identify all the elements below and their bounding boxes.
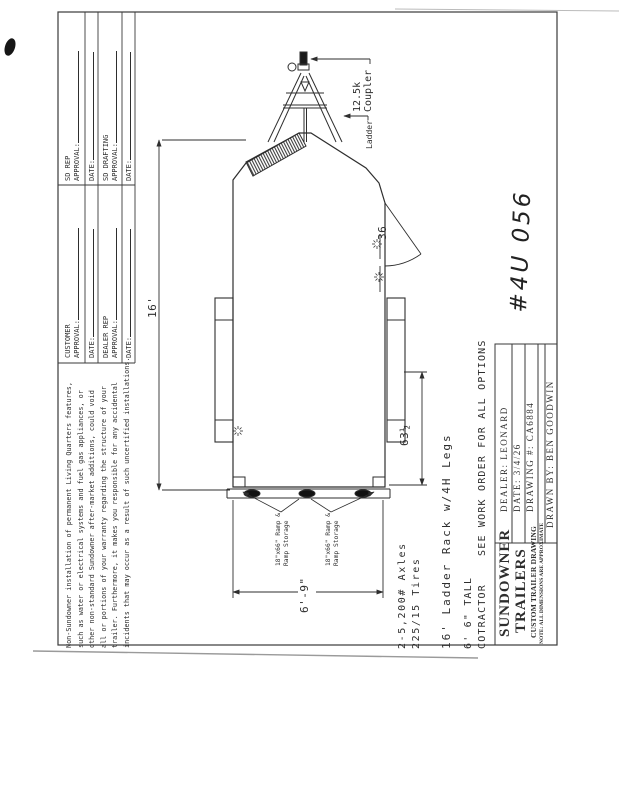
sd-rep-label: SD REP (64, 51, 73, 181)
sd-drafting-label: SD DRAFTING (102, 51, 111, 181)
warranty-disclaimer: Non-Sundowner installation of permanent … (64, 357, 134, 648)
rear-dim-label: 63½ (399, 425, 411, 446)
disclaimer-line: such as water or electrical systems and … (76, 357, 88, 648)
signature-line (114, 228, 117, 320)
trailer-body (233, 133, 385, 487)
dimensions-note: NOTE: ALL DIMENSIONS ARE APPROXIMATE (540, 523, 546, 644)
fenders (215, 298, 405, 442)
disclaimer-line: all or portions of your warranty regardi… (99, 357, 111, 648)
approval-label: APPROVAL: (73, 320, 81, 358)
drawn-by-field: DRAWN BY: BEN GOODWIN (546, 380, 555, 528)
date-cell: DATE: (125, 52, 134, 181)
date-line (91, 229, 94, 337)
work-order-note: SEE WORK ORDER FOR ALL OPTIONS (478, 339, 489, 556)
approval-label: APPROVAL: (73, 143, 81, 181)
sd-rep-approval-cell: SD REP APPROVAL: (64, 51, 82, 181)
customer-approval-cell: CUSTOMER APPROVAL: (64, 228, 82, 358)
light-burst-icon (233, 426, 243, 436)
option-contractor: COTRACTOR (478, 584, 489, 649)
date-label: DATE: (125, 337, 133, 358)
signature-line (76, 228, 79, 320)
tail-light-icon (299, 490, 315, 497)
date-label: DATE: (88, 160, 96, 181)
ladder-rack-bar (246, 133, 306, 176)
ladder-label: Ladder (366, 120, 374, 149)
option-axles: 2-5,200# Axles (396, 542, 410, 649)
option-height: 6' 6" TALL (464, 577, 475, 649)
option-tires: 225/15 Tires (410, 542, 424, 649)
scanned-trailer-drawing-page: SD REP APPROVAL: DATE: SD DRAFTING APPRO… (0, 0, 619, 800)
length-dim-label: 16' (147, 297, 159, 318)
customer-label: CUSTOMER (64, 228, 73, 358)
ramp-label-right: 18"x66" Ramp & Ramp Storage (325, 513, 341, 566)
option-ladder-rack: 16' Ladder Rack w/4H Legs (441, 433, 453, 649)
coupler-icon (300, 52, 307, 65)
date-cell: DATE: (88, 52, 97, 181)
tongue-and-coupler (268, 52, 342, 142)
ramp-label-left: 18"x66" Ramp & Ramp Storage (275, 513, 291, 566)
disclaimer-line: trailer. Furthermore, it makes you respo… (110, 357, 122, 648)
company-name-line2: TRAILERS (514, 548, 530, 633)
rear-bumper (227, 489, 390, 512)
date-label: DATE: (125, 160, 133, 181)
sd-drafting-approval-cell: SD DRAFTING APPROVAL: (102, 51, 120, 181)
handwritten-order-number: #4U 056 (506, 189, 536, 313)
width-dim-label: 6'-9" (299, 577, 311, 613)
disclaimer-line: Non-Sundowner installation of permanent … (64, 357, 76, 648)
date-cell: DATE: (88, 229, 97, 358)
company-name-line1: SUNDOWNER (498, 529, 514, 637)
date-line (91, 52, 94, 160)
hinge-burst-icon (374, 272, 384, 282)
signature-line (76, 51, 79, 143)
drawing-subtitle: CUSTOM TRAILER DRAWING (530, 526, 538, 638)
date-label: DATE: (88, 337, 96, 358)
hinge-burst-icon (372, 239, 382, 249)
drawing-number-field: DRAWING #: CA6884 (526, 402, 535, 512)
date-line (128, 52, 131, 160)
dealer-rep-label: DEALER REP (102, 228, 111, 358)
dealer-rep-approval-cell: DEALER REP APPROVAL: (102, 228, 120, 358)
approval-label: APPROVAL: (111, 320, 119, 358)
date-line (128, 229, 131, 337)
dealer-field: DEALER: LEONARD (500, 406, 509, 512)
tail-light-icon (355, 490, 371, 497)
door-width-label: 36 (377, 226, 389, 240)
options-axles-tires: 2-5,200# Axles 225/15 Tires (396, 542, 424, 649)
date-cell: DATE: (125, 229, 134, 358)
disclaimer-line: incidents that may occur as a result of … (122, 357, 134, 648)
approval-label: APPROVAL: (111, 143, 119, 181)
signature-line (114, 51, 117, 143)
disclaimer-line: other non-standard Sundowner after-marke… (87, 357, 99, 648)
coupler-label: 12.5k Coupler (353, 70, 374, 112)
date-field: DATE: 3/4/26 (513, 443, 522, 512)
side-door-swing (372, 203, 421, 292)
